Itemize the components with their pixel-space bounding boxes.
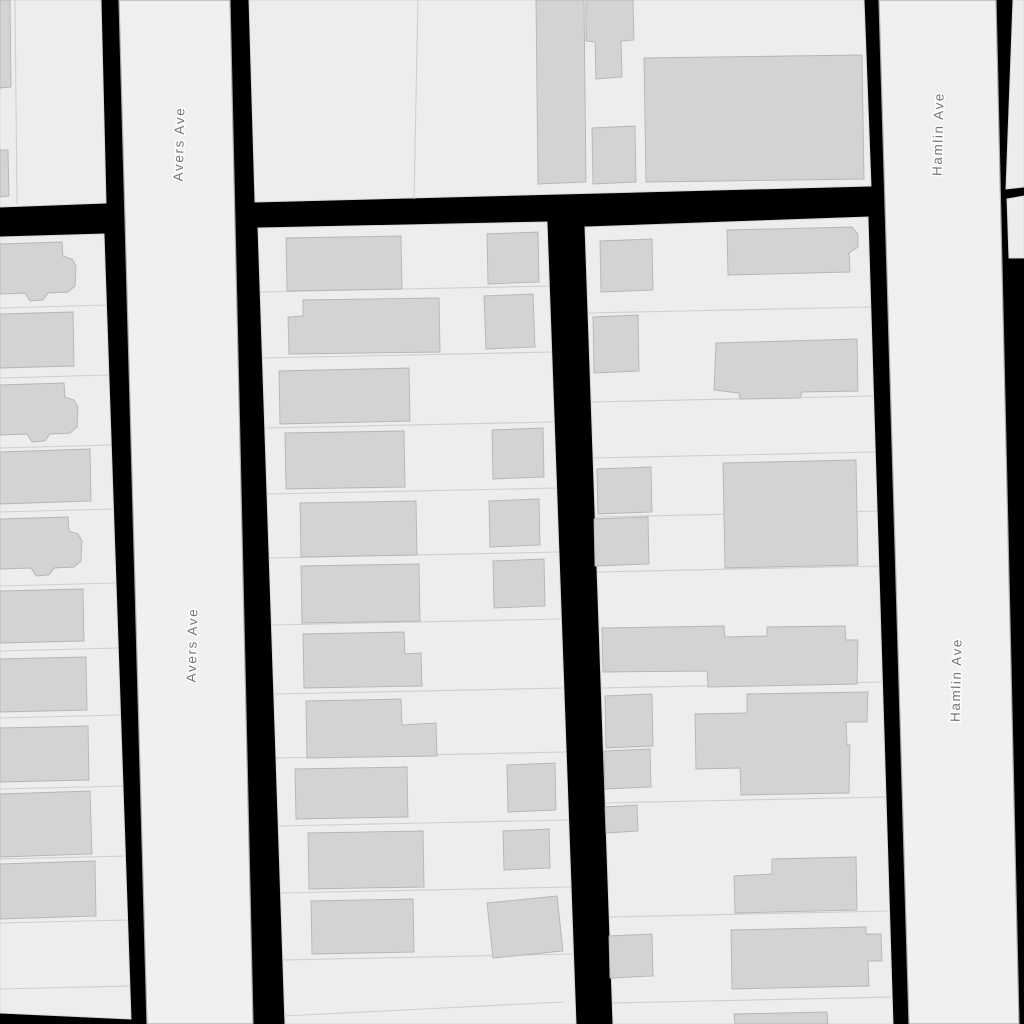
building-footprint	[0, 791, 92, 857]
building-footprint	[0, 657, 87, 712]
building-footprint	[592, 126, 636, 184]
building-footprint	[0, 589, 84, 643]
building-footprint	[489, 499, 540, 547]
building-footprint	[727, 227, 858, 275]
building-footprint	[288, 298, 440, 354]
building-footprint	[714, 339, 858, 399]
building-footprint	[286, 236, 402, 291]
building-footprint	[279, 368, 410, 424]
building-footprint	[604, 749, 651, 789]
building-footprint	[593, 315, 639, 373]
building-footprint	[303, 632, 422, 688]
building-footprint	[605, 805, 638, 833]
building-footprint	[301, 564, 420, 623]
building-footprint	[285, 431, 405, 489]
building-footprint	[644, 55, 864, 182]
city-block	[1006, 0, 1024, 189]
building-footprint	[311, 899, 414, 954]
building-footprint	[484, 294, 535, 349]
building-footprint	[507, 763, 556, 812]
building-footprint	[487, 896, 563, 958]
building-footprint	[503, 829, 550, 870]
building-footprint	[0, 150, 9, 197]
city-block	[1007, 196, 1024, 258]
building-footprint	[0, 312, 74, 368]
building-footprint	[536, 0, 586, 184]
building-footprint	[0, 0, 11, 88]
building-footprint	[723, 460, 858, 568]
building-footprint	[0, 726, 89, 782]
building-footprint	[0, 449, 91, 504]
street-label-avers-north: Avers Ave	[171, 106, 188, 181]
building-footprint	[597, 467, 652, 514]
street-label-hamlin-north: Hamlin Ave	[929, 92, 946, 176]
building-footprint	[300, 501, 417, 557]
street-surface	[879, 0, 1019, 1024]
building-footprint	[493, 559, 545, 608]
building-footprint	[600, 239, 653, 292]
map-geometry-layer	[0, 0, 1024, 1024]
building-footprint	[487, 232, 539, 284]
building-footprint	[731, 927, 882, 989]
building-footprint	[308, 831, 424, 889]
building-footprint	[492, 428, 544, 479]
building-footprint	[0, 861, 96, 919]
building-footprint	[734, 1012, 828, 1024]
map-tile-layer: Avers Ave Avers Ave Hamlin Ave Hamlin Av…	[0, 0, 1024, 1024]
building-footprint	[609, 934, 653, 978]
building-footprint	[295, 767, 408, 819]
street-label-hamlin-south: Hamlin Ave	[947, 638, 964, 722]
street-label-avers-south: Avers Ave	[184, 607, 201, 682]
building-footprint	[605, 694, 653, 748]
building-footprint	[594, 517, 649, 566]
map-canvas[interactable]: Avers Ave Avers Ave Hamlin Ave Hamlin Av…	[0, 0, 1024, 1024]
